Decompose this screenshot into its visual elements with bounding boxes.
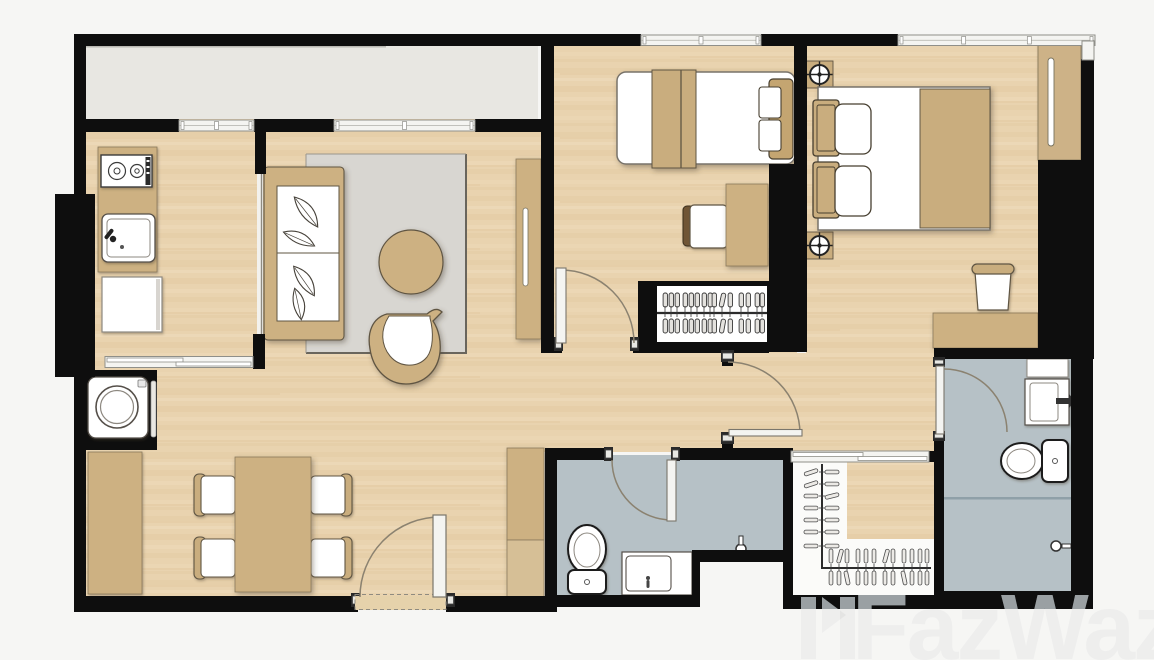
svg-text:FazWaz: FazWaz <box>852 575 1154 660</box>
